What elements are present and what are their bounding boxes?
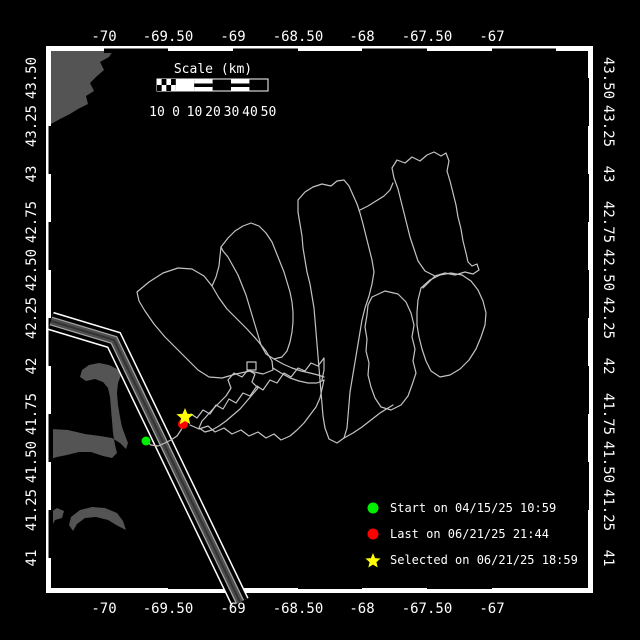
lon-label-bottom: -67.50 (402, 601, 453, 617)
frame-tick-block (49, 126, 54, 174)
selected-marker-icon (362, 549, 384, 571)
lat-label-left: 41 (24, 550, 40, 567)
lon-label-top: -68 (349, 29, 374, 45)
scalebar-tick-label: 10 (149, 105, 165, 120)
scalebar-checker-cell (171, 85, 176, 91)
frame-tick-block (49, 222, 54, 270)
scalebar-tick-label: 0 (172, 105, 180, 120)
circle-glyph (362, 523, 384, 545)
lat-label-left: 43.50 (24, 57, 40, 99)
scalebar-segment-stripe (231, 84, 249, 88)
start-marker[interactable] (142, 437, 151, 446)
star-glyph (362, 549, 384, 571)
lat-label-left: 42.75 (24, 201, 40, 243)
frame-tick-block (49, 510, 54, 558)
legend-row-last: Last on 06/21/25 21:44 (362, 521, 578, 547)
lon-label-bottom: -70 (91, 601, 116, 617)
lat-label-right: 43.50 (600, 57, 616, 99)
frame-tick-block (298, 585, 362, 590)
lat-label-left: 41.50 (24, 441, 40, 483)
scalebar-tick-label: 10 (187, 105, 203, 120)
scalebar-tick-label: 20 (205, 105, 221, 120)
frame-tick-block (585, 270, 590, 318)
lat-label-right: 41 (600, 550, 616, 567)
frame-tick-block (362, 49, 427, 54)
frame-tick-block (585, 174, 590, 222)
frame-tick-block (492, 49, 556, 54)
lat-label-right: 41.25 (600, 489, 616, 531)
scalebar-tick-label: 50 (261, 105, 277, 120)
frame-tick-block (104, 49, 168, 54)
scalebar-checker-cell (157, 85, 162, 91)
frame-tick-block (585, 78, 590, 126)
lon-label-top: -68.50 (273, 29, 324, 45)
legend-row-start: Start on 04/15/25 10:59 (362, 495, 578, 521)
lat-label-left: 41.25 (24, 489, 40, 531)
lon-label-bottom: -69.50 (143, 601, 194, 617)
track-map-viewer: Scale (km)1001020304050-70-70-69.50-69.5… (0, 0, 640, 640)
lon-label-bottom: -67 (479, 601, 504, 617)
legend: Start on 04/15/25 10:59 Last on 06/21/25… (362, 495, 578, 573)
scalebar-checker-cell (171, 79, 176, 85)
scalebar-checker-cell (166, 85, 171, 91)
circle-glyph (362, 497, 384, 519)
lon-label-top: -69 (220, 29, 245, 45)
legend-row-selected: Selected on 06/21/25 18:59 (362, 547, 578, 573)
dot-icon (368, 503, 379, 514)
dot-icon (368, 529, 379, 540)
legend-selected-label: Selected on 06/21/25 18:59 (390, 553, 578, 567)
scalebar-checker-cell (162, 85, 167, 91)
frame-tick-block (233, 49, 298, 54)
lat-label-right: 42 (600, 358, 616, 375)
start-marker-icon (362, 497, 384, 519)
lon-label-top: -67 (479, 29, 504, 45)
frame-tick-block (49, 414, 54, 462)
lon-label-bottom: -68 (349, 601, 374, 617)
lon-label-top: -67.50 (402, 29, 453, 45)
lat-label-left: 42 (24, 358, 40, 375)
last-marker-icon (362, 523, 384, 545)
scalebar-checker-cell (166, 79, 171, 85)
lat-label-left: 42.25 (24, 297, 40, 339)
lon-label-bottom: -69 (220, 601, 245, 617)
lat-label-left: 43 (24, 166, 40, 183)
lat-label-right: 43 (600, 166, 616, 183)
lat-label-right: 42.75 (600, 201, 616, 243)
scalebar-tick-label: 40 (242, 105, 258, 120)
lat-label-left: 43.25 (24, 105, 40, 147)
legend-start-label: Start on 04/15/25 10:59 (390, 501, 556, 515)
lat-label-right: 42.25 (600, 297, 616, 339)
lat-label-right: 43.25 (600, 105, 616, 147)
frame-tick-block (585, 462, 590, 510)
lon-label-bottom: -68.50 (273, 601, 324, 617)
lat-label-right: 41.50 (600, 441, 616, 483)
frame-tick-block (585, 366, 590, 414)
lat-label-left: 41.75 (24, 393, 40, 435)
lat-label-left: 42.50 (24, 249, 40, 291)
star-icon (365, 553, 380, 567)
lon-label-top: -69.50 (143, 29, 194, 45)
lat-label-right: 42.50 (600, 249, 616, 291)
lon-label-top: -70 (91, 29, 116, 45)
lat-label-right: 41.75 (600, 393, 616, 435)
scalebar-segment-stripe (194, 84, 212, 88)
scalebar-checker-cell (157, 79, 162, 85)
frame-tick-block (427, 585, 492, 590)
legend-last-label: Last on 06/21/25 21:44 (390, 527, 549, 541)
scalebar-title: Scale (km) (174, 62, 252, 77)
scalebar-segment (176, 80, 194, 91)
scalebar-tick-label: 30 (224, 105, 240, 120)
scalebar-checker-cell (162, 79, 167, 85)
